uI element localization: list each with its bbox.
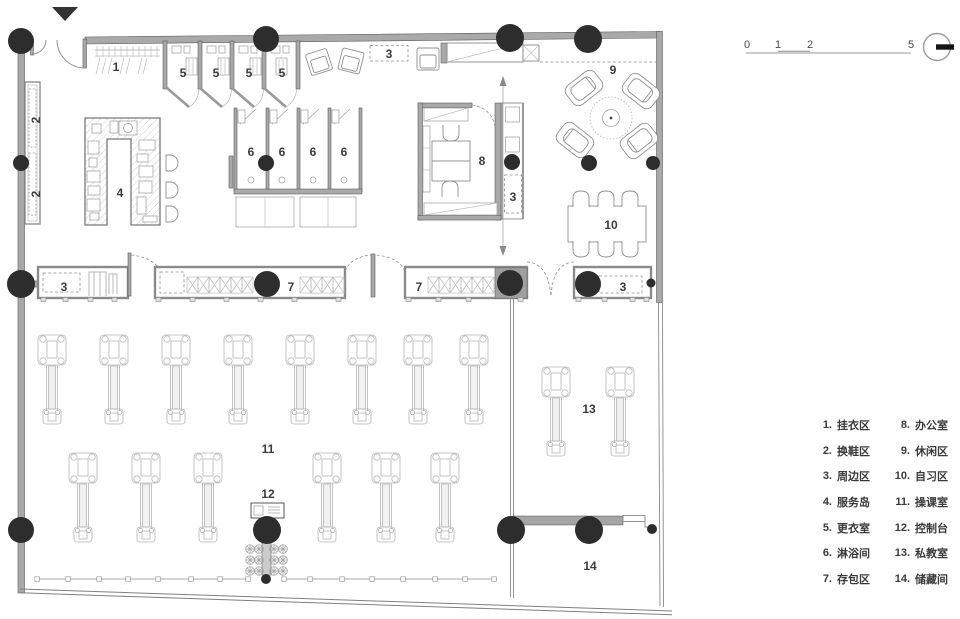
room-label-6: 6 <box>341 145 348 159</box>
lounge-chair <box>562 67 605 108</box>
columns <box>7 24 660 584</box>
legend-num: 12. <box>890 522 910 534</box>
legend-item: 8.办公室 <box>890 412 960 438</box>
chair <box>338 48 365 75</box>
room-label-4: 4 <box>117 186 124 200</box>
room-label-5: 5 <box>213 66 220 80</box>
office-chair <box>442 181 458 197</box>
legend-num: 8. <box>890 419 910 431</box>
legend-num: 4. <box>812 496 832 508</box>
legend-num: 11. <box>890 496 910 508</box>
room-label-3: 3 <box>386 47 393 61</box>
legend-label: 休闲区 <box>915 443 948 459</box>
legend-item: 2.换鞋区 <box>812 438 884 464</box>
exercise-machine <box>313 453 341 542</box>
exercise-machine <box>69 453 97 542</box>
chair <box>305 48 333 76</box>
room-label-2: 2 <box>29 190 43 197</box>
exercise-machine <box>132 453 160 542</box>
legend-label: 自习区 <box>915 468 948 484</box>
exercise-machine <box>348 335 376 424</box>
exercise-machine <box>372 453 400 542</box>
room-label-9: 9 <box>610 63 617 77</box>
room-label-7: 7 <box>416 280 423 294</box>
legend-label: 更衣室 <box>837 520 870 536</box>
chair <box>598 241 614 257</box>
legend-column-1: 1.挂衣区 2.换鞋区 3.周边区 4.服务岛 5.更衣室 6.淋浴间 7.存包… <box>812 412 884 592</box>
room-label-5: 5 <box>246 66 253 80</box>
legend: 1.挂衣区 2.换鞋区 3.周边区 4.服务岛 5.更衣室 6.淋浴间 7.存包… <box>812 412 960 592</box>
office-desk <box>432 141 470 161</box>
legend-label: 储藏间 <box>915 571 948 587</box>
scale-tick-2: 2 <box>807 39 813 51</box>
room-label-3: 3 <box>620 280 627 294</box>
room-label-1: 1 <box>113 60 120 74</box>
legend-item: 7.存包区 <box>812 566 884 592</box>
room-label-14: 14 <box>583 559 597 573</box>
exercise-machine <box>194 453 222 542</box>
exercise-machine <box>100 335 128 424</box>
lounge-chair <box>619 70 662 111</box>
chair <box>417 48 439 70</box>
legend-label: 操课室 <box>915 494 948 510</box>
exercise-machine <box>431 453 459 542</box>
shower-benches <box>236 197 356 227</box>
room-label-5: 5 <box>279 66 286 80</box>
room-label-12: 12 <box>261 487 275 501</box>
exercise-machine <box>460 335 488 424</box>
legend-label: 私教室 <box>915 545 948 561</box>
legend-item: 4.服务岛 <box>812 489 884 515</box>
legend-num: 1. <box>812 419 832 431</box>
changing-room-doors <box>167 88 297 107</box>
room-label-2: 2 <box>29 116 43 123</box>
exercise-machine <box>38 335 66 424</box>
legend-item: 14.储藏间 <box>890 566 960 592</box>
room-label-6: 6 <box>248 145 255 159</box>
chair <box>598 191 614 207</box>
scale-tick-5: 5 <box>908 39 914 51</box>
legend-label: 控制台 <box>915 520 948 536</box>
coat-area-1 <box>95 46 160 74</box>
room-label-3: 3 <box>510 190 517 204</box>
entrance-arrow-icon <box>52 7 78 21</box>
chair <box>573 241 589 257</box>
top-merch-area <box>305 43 657 76</box>
exercise-machine <box>162 335 190 424</box>
service-island-4 <box>85 118 178 225</box>
legend-label: 服务岛 <box>837 494 870 510</box>
room-label-7: 7 <box>288 280 295 294</box>
legend-item: 6.淋浴间 <box>812 540 884 566</box>
exercise-machine <box>224 335 252 424</box>
room-label-6: 6 <box>279 145 286 159</box>
stool <box>166 155 178 171</box>
stool <box>166 206 178 222</box>
legend-num: 14. <box>890 573 910 585</box>
legend-item: 3.周边区 <box>812 463 884 489</box>
legend-num: 5. <box>812 522 832 534</box>
legend-item: 9.休闲区 <box>890 438 960 464</box>
legend-num: 2. <box>812 445 832 457</box>
lounge-chair <box>617 120 660 161</box>
office-chair <box>443 125 459 141</box>
legend-label: 存包区 <box>837 571 870 587</box>
room-label-5: 5 <box>180 66 187 80</box>
legend-num: 13. <box>890 547 910 559</box>
room-label-11: 11 <box>262 442 275 456</box>
north-icon <box>924 34 955 61</box>
legend-label: 挂衣区 <box>837 417 870 433</box>
chair <box>622 191 638 207</box>
partition-13 <box>511 298 514 598</box>
legend-item: 5.更衣室 <box>812 515 884 541</box>
chair <box>622 241 638 257</box>
showers-6 <box>229 108 362 227</box>
room-label-8: 8 <box>479 154 486 168</box>
entrance <box>31 7 87 68</box>
legend-item: 10.自习区 <box>890 463 960 489</box>
legend-num: 10. <box>890 470 910 482</box>
scale-tick-0: 0 <box>744 39 750 51</box>
lounge-chair <box>553 119 596 160</box>
scale-bar: 0 1 2 5 <box>744 39 914 53</box>
legend-num: 7. <box>812 573 832 585</box>
legend-label: 办公室 <box>915 417 948 433</box>
room-label-13: 13 <box>582 402 596 416</box>
legend-num: 6. <box>812 547 832 559</box>
leisure-9 <box>553 67 662 161</box>
room-label-6: 6 <box>310 145 317 159</box>
legend-column-2: 8.办公室 9.休闲区 10.自习区 11.操课室 12.控制台 13.私教室 … <box>890 412 960 592</box>
exercise-machine <box>286 335 314 424</box>
legend-item: 1.挂衣区 <box>812 412 884 438</box>
legend-item: 12.控制台 <box>890 515 960 541</box>
legend-label: 淋浴间 <box>837 545 870 561</box>
shoe-bench-2 <box>25 82 40 224</box>
legend-num: 9. <box>890 445 910 457</box>
storage-band <box>24 253 651 302</box>
legend-label: 周边区 <box>837 468 870 484</box>
stool <box>166 182 178 198</box>
legend-item: 13.私教室 <box>890 540 960 566</box>
exercise-machine <box>404 335 432 424</box>
exercise-machine <box>542 367 570 456</box>
legend-label: 换鞋区 <box>837 443 870 459</box>
room-label-3: 3 <box>61 280 68 294</box>
room-label-10: 10 <box>604 218 618 232</box>
legend-num: 3. <box>812 470 832 482</box>
exercise-machine <box>606 367 634 456</box>
chair <box>573 191 589 207</box>
legend-item: 11.操课室 <box>890 489 960 515</box>
scale-tick-1: 1 <box>775 39 781 51</box>
